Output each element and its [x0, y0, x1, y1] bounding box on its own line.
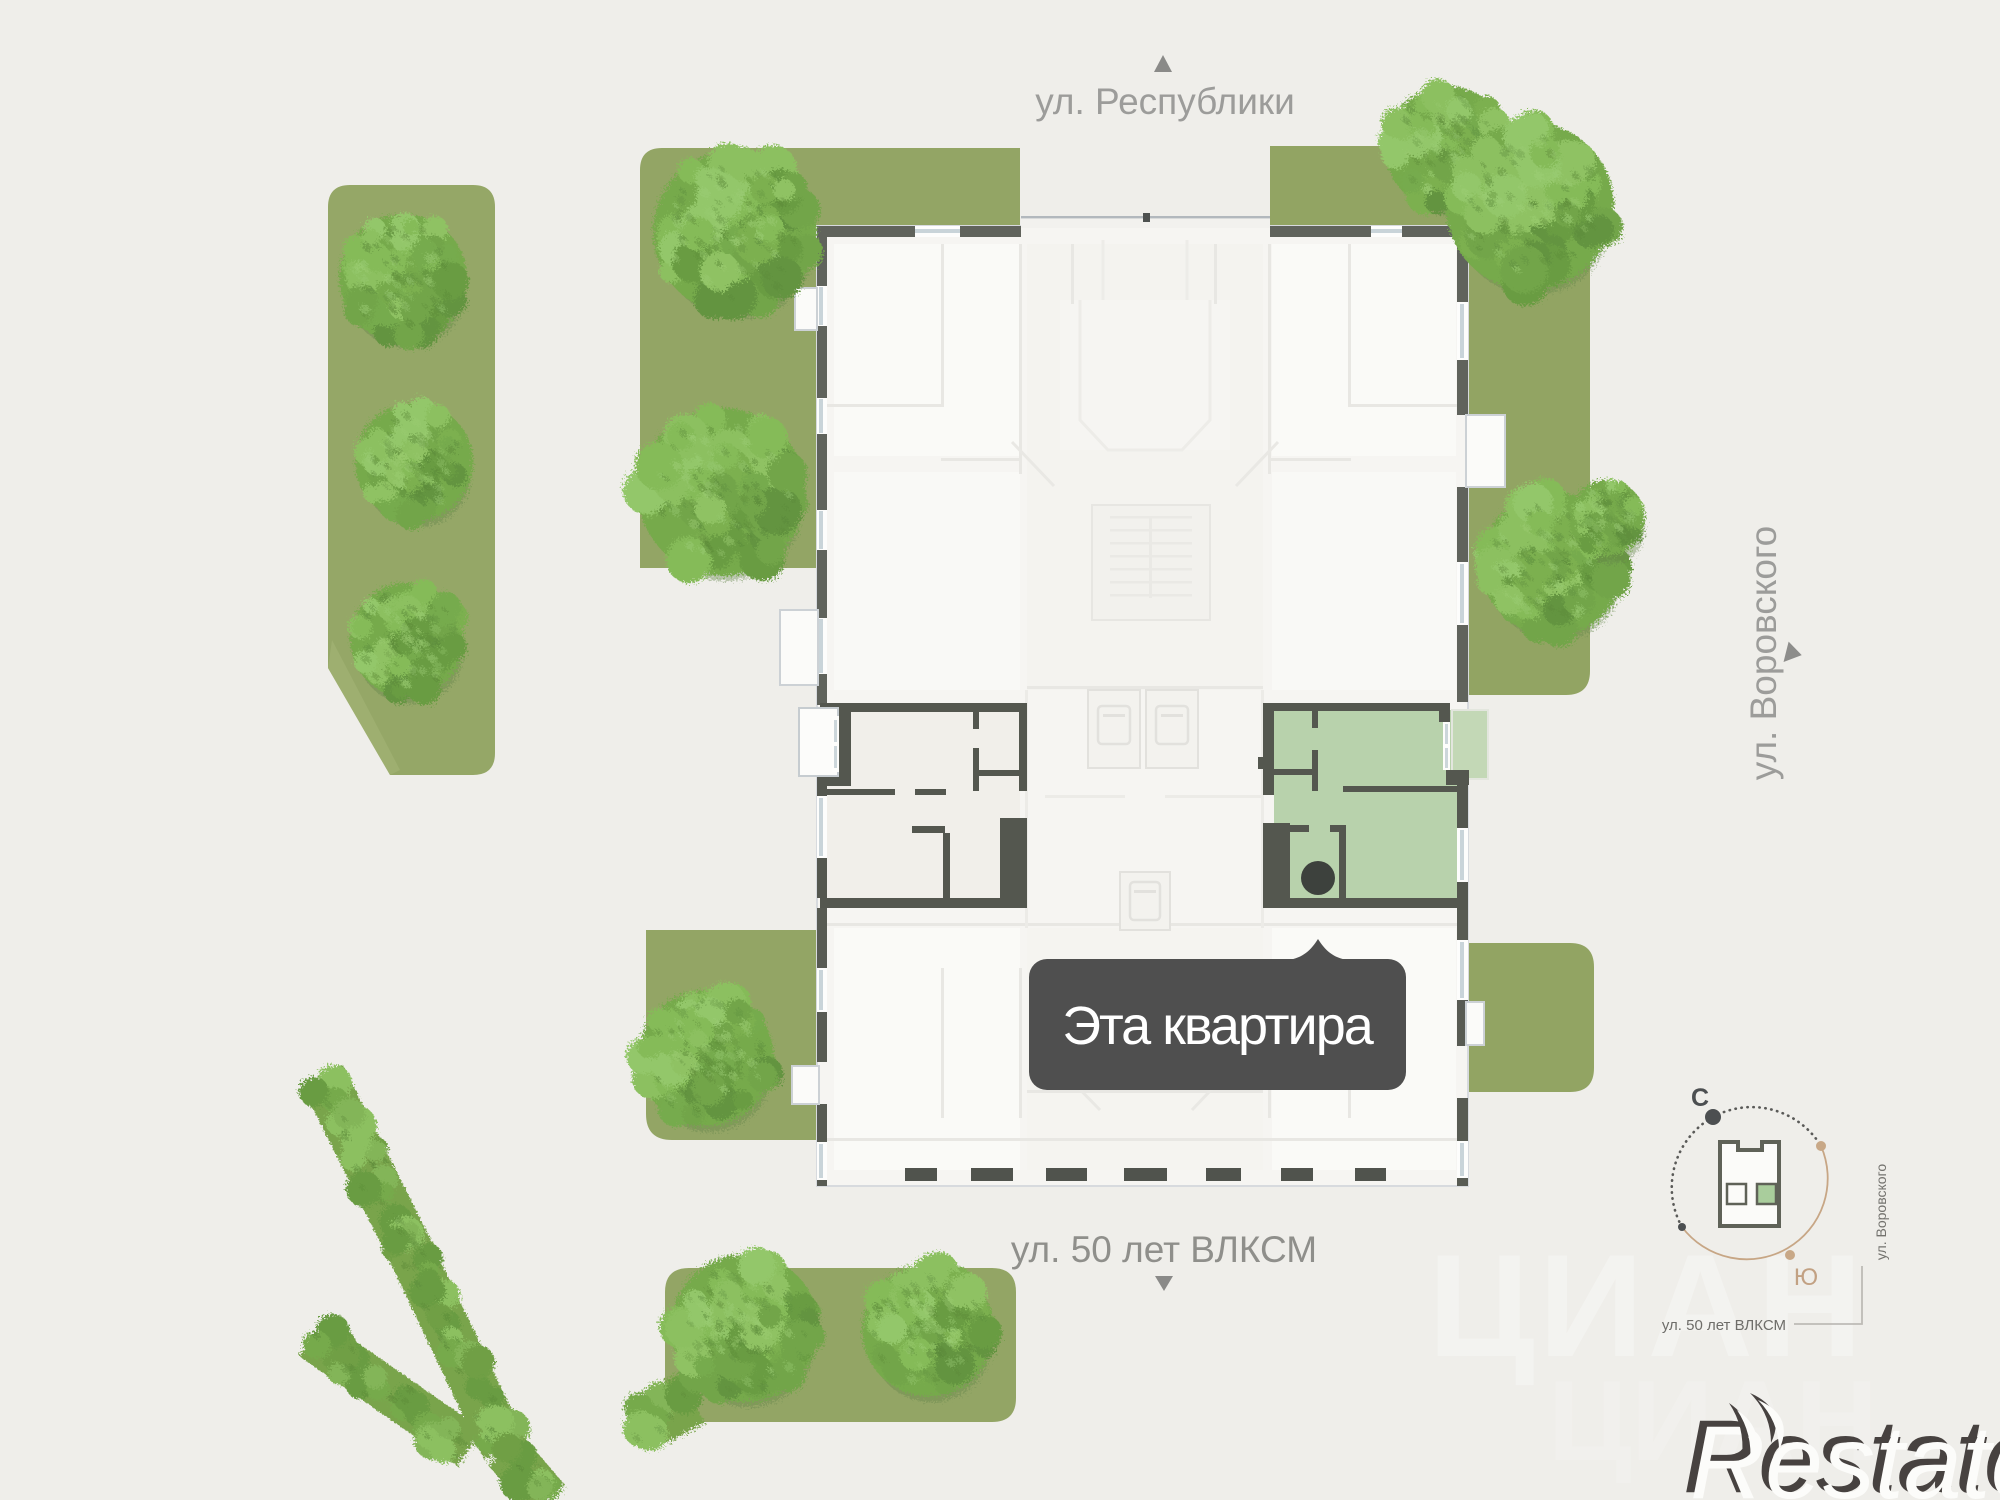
svg-text:ул. Воровского: ул. Воровского	[1743, 526, 1784, 780]
svg-text:Эта квартира: Эта квартира	[1062, 996, 1374, 1056]
svg-text:ул. 50 лет ВЛКСМ: ул. 50 лет ВЛКСМ	[1662, 1317, 1786, 1334]
svg-text:ул. Воровского: ул. Воровского	[1873, 1164, 1889, 1260]
svg-text:Ю: Ю	[1794, 1264, 1818, 1291]
svg-text:Restate: Restate	[1690, 1405, 2000, 1500]
svg-text:ул. 50 лет ВЛКСМ: ул. 50 лет ВЛКСМ	[1011, 1229, 1317, 1270]
svg-text:ул. Республики: ул. Республики	[1035, 81, 1295, 122]
svg-text:С: С	[1691, 1084, 1709, 1112]
